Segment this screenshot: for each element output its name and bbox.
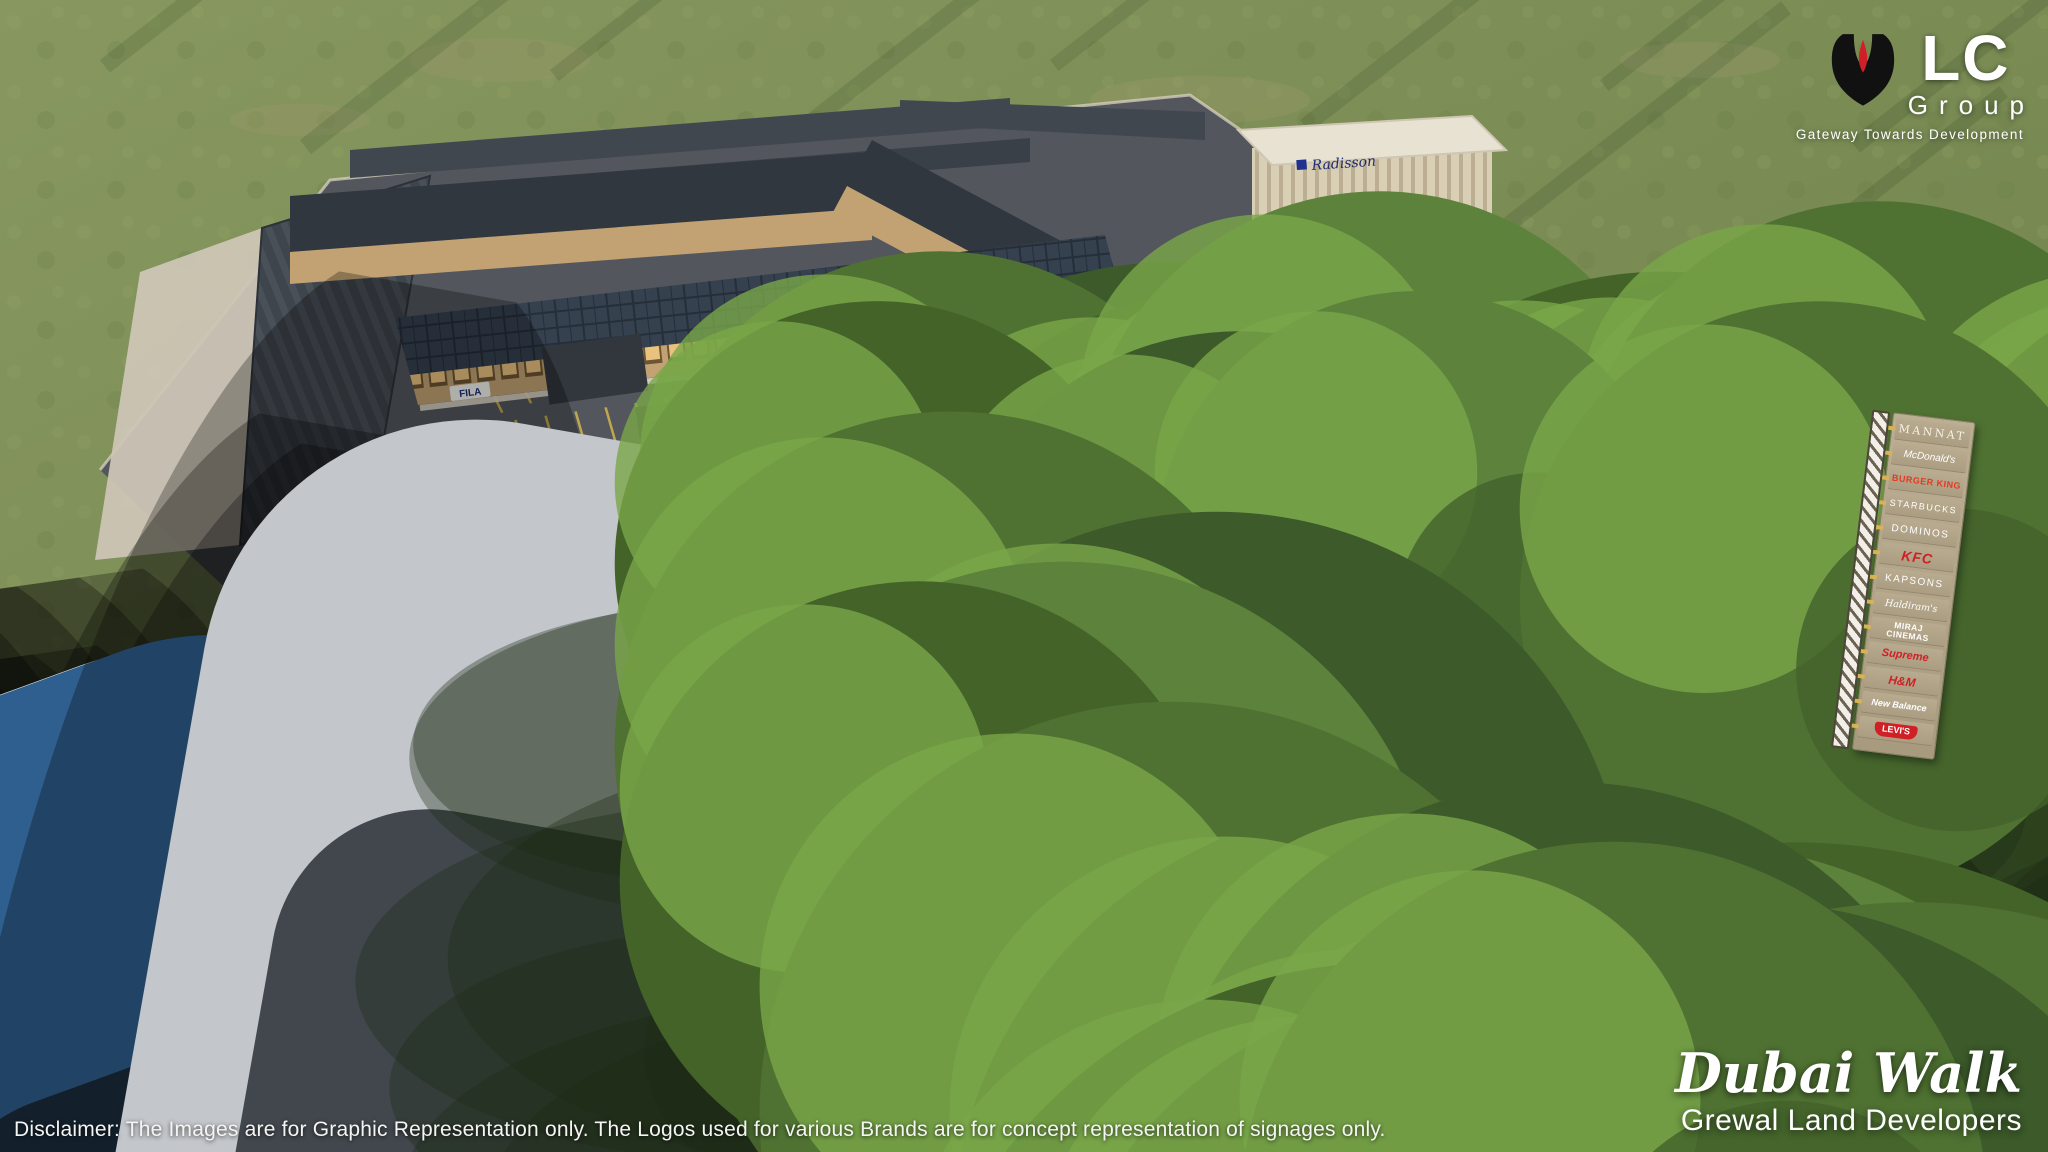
aerial-render: FILA Radisson M	[0, 0, 2048, 1152]
lc-group-word: Group	[1908, 90, 2035, 121]
lc-crest-icon	[1830, 30, 1896, 108]
site-render: FILA Radisson M	[0, 0, 2048, 1152]
lc-tagline: Gateway Towards Development	[1796, 127, 2024, 142]
lc-monogram: LC	[1921, 30, 2010, 88]
radisson-chip-icon	[1296, 159, 1307, 170]
disclaimer-text: Disclaimer: The Images are for Graphic R…	[14, 1118, 1386, 1142]
developer-name: Grewal Land Developers	[1675, 1104, 2022, 1138]
lc-group-logo: LC Group Gateway Towards Development	[1796, 30, 2024, 142]
project-branding: Dubai Walk Grewal Land Developers	[1675, 1046, 2022, 1138]
project-name-script: Dubai Walk	[1675, 1046, 2022, 1100]
